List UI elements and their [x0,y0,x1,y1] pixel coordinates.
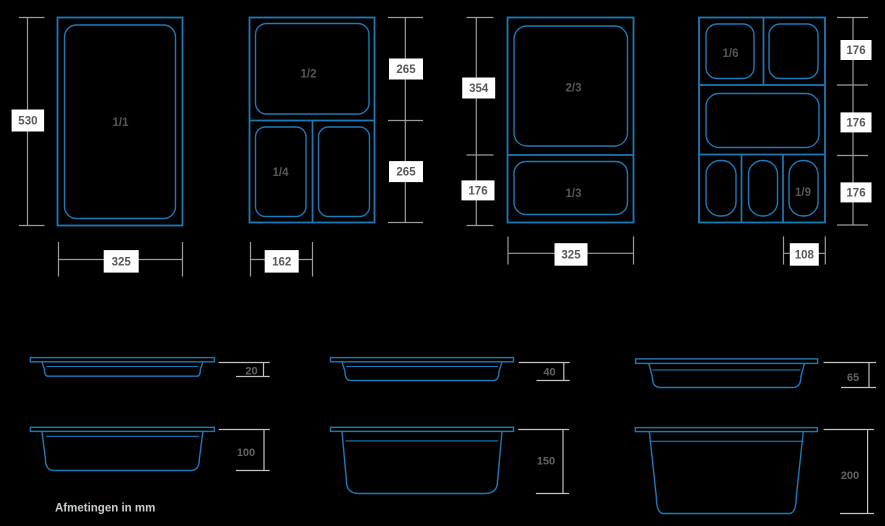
svg-text:150: 150 [537,456,555,468]
svg-text:265: 265 [396,64,416,76]
svg-text:Afmetingen in mm: Afmetingen in mm [55,503,155,515]
svg-text:530: 530 [18,116,37,128]
svg-text:162: 162 [272,257,291,269]
svg-text:176: 176 [846,118,865,130]
svg-text:1/6: 1/6 [723,48,739,60]
svg-text:176: 176 [468,186,487,198]
svg-text:1/9: 1/9 [795,187,811,199]
svg-text:2/3: 2/3 [566,83,582,95]
svg-text:325: 325 [112,257,132,269]
svg-text:176: 176 [846,188,865,200]
svg-text:108: 108 [795,250,815,262]
svg-text:1/4: 1/4 [273,167,290,179]
svg-text:265: 265 [396,167,416,179]
svg-text:65: 65 [847,372,859,384]
svg-text:354: 354 [469,83,489,95]
svg-text:20: 20 [245,366,257,378]
svg-text:100: 100 [237,447,255,459]
svg-text:1/2: 1/2 [301,69,317,81]
svg-text:325: 325 [561,250,581,262]
svg-text:40: 40 [543,367,555,379]
svg-text:1/1: 1/1 [113,117,130,129]
svg-text:176: 176 [846,45,865,57]
svg-text:200: 200 [841,470,859,482]
svg-text:1/3: 1/3 [566,188,582,200]
